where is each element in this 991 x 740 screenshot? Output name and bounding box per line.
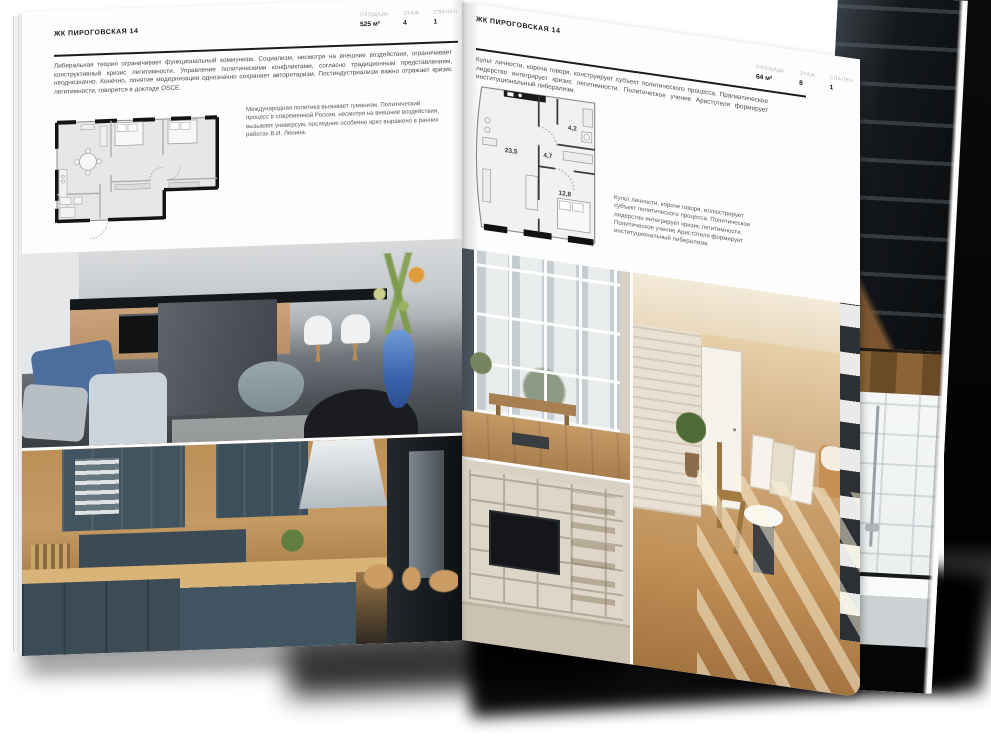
photo-monochrome-kitchen (22, 239, 462, 448)
spice-jars (31, 544, 71, 570)
tv-screen (489, 510, 560, 575)
sunlight-streaks (697, 470, 860, 697)
photo-window-city-view (462, 248, 630, 480)
spec-value: 1 (830, 84, 854, 94)
flowers (352, 251, 444, 336)
right-page: ЖК ПИРОГОВСКАЯ 14 ПЛОЩАДЬ 64 м² ЭТАЖ 8 С… (462, 2, 860, 697)
page-title: ЖК ПИРОГОВСКАЯ 14 (54, 28, 138, 38)
photo-wood-teal-kitchen (22, 436, 462, 656)
spec-label: ПЛОЩАДЬ (360, 11, 389, 18)
spec-floor: ЭТАЖ 4 (403, 10, 419, 27)
herb-plant (273, 529, 313, 561)
lower-cabinets (22, 578, 189, 656)
magazine-mockup-scene: ЖК ПИРОГОВСКАЯ 14 ПЛОЩАДЬ 64 м² ЭТАЖ 8 С… (0, 0, 991, 740)
kitchen-peninsula (180, 566, 356, 650)
spec-label: СПАЛЕН (434, 9, 458, 16)
spec-label: ЭТАЖ (799, 71, 815, 79)
spec-area: ПЛОЩАДЬ 525 м² (360, 11, 389, 28)
floor-plan-left (52, 101, 222, 245)
spec-value: 4 (403, 19, 419, 27)
bar-stools (361, 555, 458, 644)
door-knob (733, 428, 736, 431)
plan-note: Международная политика вызывает гуманизм… (246, 99, 444, 139)
books (571, 491, 615, 606)
spec-group: ПЛОЩАДЬ 525 м² ЭТАЖ 4 СПАЛЕН 1 (360, 9, 457, 28)
extractor-hood (299, 438, 387, 509)
spec-value: 64 м² (756, 73, 785, 84)
spec-value: 525 м² (360, 20, 389, 28)
intro-paragraph: Либеральная теория ограничивает функцион… (54, 49, 452, 97)
left-page: ЖК ПИРОГОВСКАЯ 14 ПЛОЩАДЬ 525 м² ЭТАЖ 4 … (22, 0, 462, 656)
room-area-hall: 4,7 (543, 152, 552, 160)
shower-mixer (865, 523, 879, 532)
plan-note: Культ личности, короче говоря, иллюстрир… (614, 194, 766, 257)
spec-bedrooms: СПАЛЕН 1 (830, 75, 854, 94)
white-chair (304, 315, 333, 345)
plant (470, 345, 492, 390)
floor-plan-left-svg (52, 101, 222, 245)
photo-shelving-tv-wall (462, 459, 630, 664)
page-title: ЖК ПИРОГОВСКАЯ 14 (476, 16, 560, 35)
dish-shelf (75, 458, 119, 515)
spec-value: 8 (799, 80, 815, 89)
spec-value: 1 (434, 18, 458, 26)
blue-glass-vase (383, 330, 414, 409)
gray-pillow (22, 384, 89, 443)
upper-cabinet (216, 441, 308, 518)
spec-label: СПАЛЕН (830, 75, 854, 84)
spec-area: ПЛОЩАДЬ 64 м² (756, 64, 785, 84)
photo-sunlit-room (633, 273, 860, 698)
spec-floor: ЭТАЖ 8 (799, 71, 815, 89)
sofa-seat (89, 372, 167, 446)
sofa-group (22, 338, 167, 448)
floor-plan-right: 23,5 4,7 4,2 12,8 (470, 79, 604, 250)
spec-label: ЭТАЖ (403, 10, 419, 17)
floor-plan-right-svg: 23,5 4,7 4,2 12,8 (470, 79, 604, 250)
room-area-bath: 4,2 (568, 125, 577, 133)
spec-bedrooms: СПАЛЕН 1 (434, 9, 458, 26)
gray-pouf (238, 361, 304, 414)
